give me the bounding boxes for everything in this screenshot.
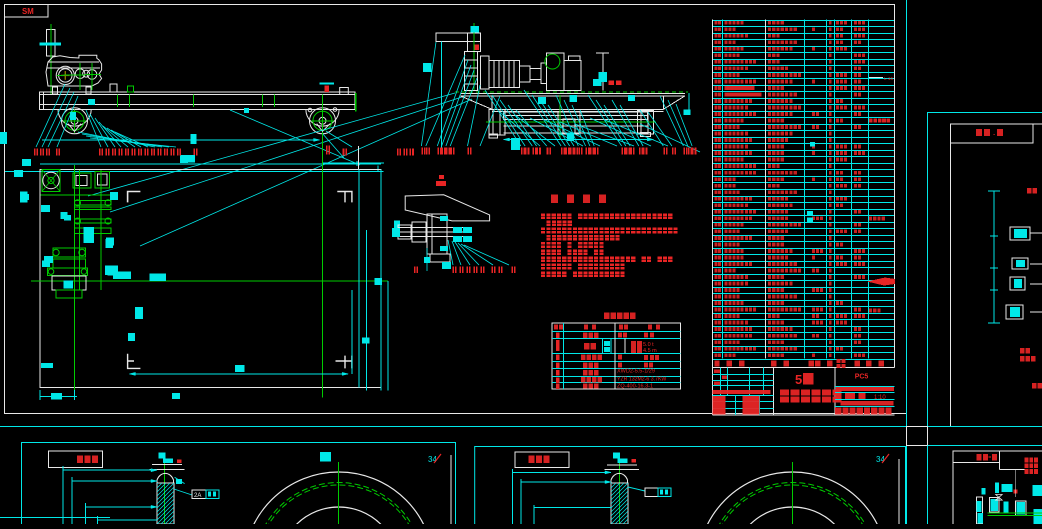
svg-text:4.5 m: 4.5 m (643, 348, 657, 354)
svg-text:ZQ-400-16.3-1: ZQ-400-16.3-1 (617, 384, 653, 390)
svg-text:5: 5 (795, 372, 802, 387)
svg-text:PC5: PC5 (855, 373, 869, 380)
svg-text:1:10: 1:10 (874, 395, 886, 401)
svg-text:YZR 132M2-6 3.7KW: YZR 132M2-6 3.7KW (617, 377, 666, 383)
svg-text:XWD2-5.5-1/29: XWD2-5.5-1/29 (617, 369, 655, 375)
svg-text:SM: SM (22, 7, 34, 16)
svg-text:2A: 2A (194, 493, 201, 499)
svg-text:L-16: L-16 (884, 76, 894, 81)
